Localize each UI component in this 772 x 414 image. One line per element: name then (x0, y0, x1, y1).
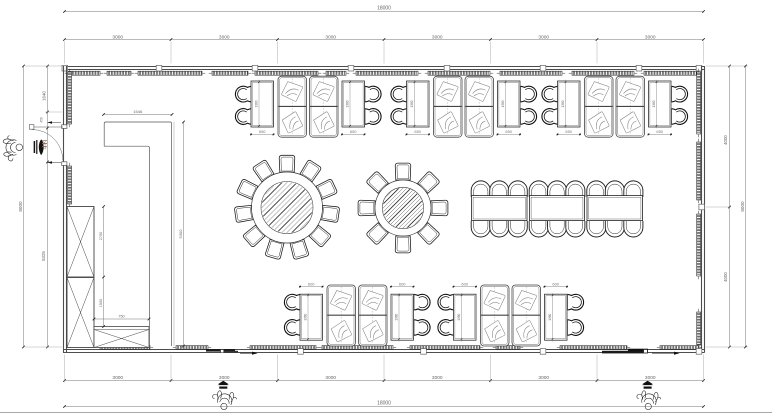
svg-text:650: 650 (505, 129, 512, 134)
svg-text:3000: 3000 (538, 34, 549, 40)
svg-text:8000: 8000 (18, 201, 23, 212)
svg-text:3000: 3000 (112, 375, 123, 381)
svg-text:4000: 4000 (723, 135, 728, 145)
svg-text:650: 650 (565, 129, 572, 134)
svg-text:18000: 18000 (377, 401, 391, 407)
svg-text:3000: 3000 (432, 34, 443, 40)
svg-text:1640: 1640 (41, 91, 46, 101)
svg-text:8000: 8000 (740, 201, 745, 212)
svg-text:1500: 1500 (99, 299, 103, 307)
svg-text:600: 600 (552, 281, 559, 286)
svg-text:3000: 3000 (219, 375, 230, 381)
svg-text:650: 650 (656, 129, 663, 134)
svg-text:600: 600 (399, 281, 406, 286)
svg-text:3000: 3000 (645, 34, 656, 40)
svg-text:18000: 18000 (377, 5, 391, 11)
svg-text:3000: 3000 (325, 34, 336, 40)
svg-text:5300: 5300 (178, 229, 183, 239)
svg-text:3000: 3000 (645, 375, 656, 381)
svg-text:450: 450 (40, 117, 44, 123)
svg-text:2700: 2700 (99, 232, 103, 240)
svg-text:650: 650 (414, 129, 421, 134)
svg-text:650: 650 (350, 129, 357, 134)
svg-text:600: 600 (308, 281, 315, 286)
svg-text:4000: 4000 (723, 272, 728, 282)
svg-text:600: 600 (461, 281, 468, 286)
svg-text:3000: 3000 (325, 375, 336, 381)
svg-text:650: 650 (259, 129, 266, 134)
svg-text:3000: 3000 (538, 375, 549, 381)
svg-text:750: 750 (118, 314, 124, 318)
svg-text:3000: 3000 (432, 375, 443, 381)
svg-text:1546: 1546 (133, 109, 143, 114)
svg-text:3000: 3000 (112, 34, 123, 40)
svg-text:5325: 5325 (41, 251, 46, 261)
svg-text:3000: 3000 (219, 34, 230, 40)
